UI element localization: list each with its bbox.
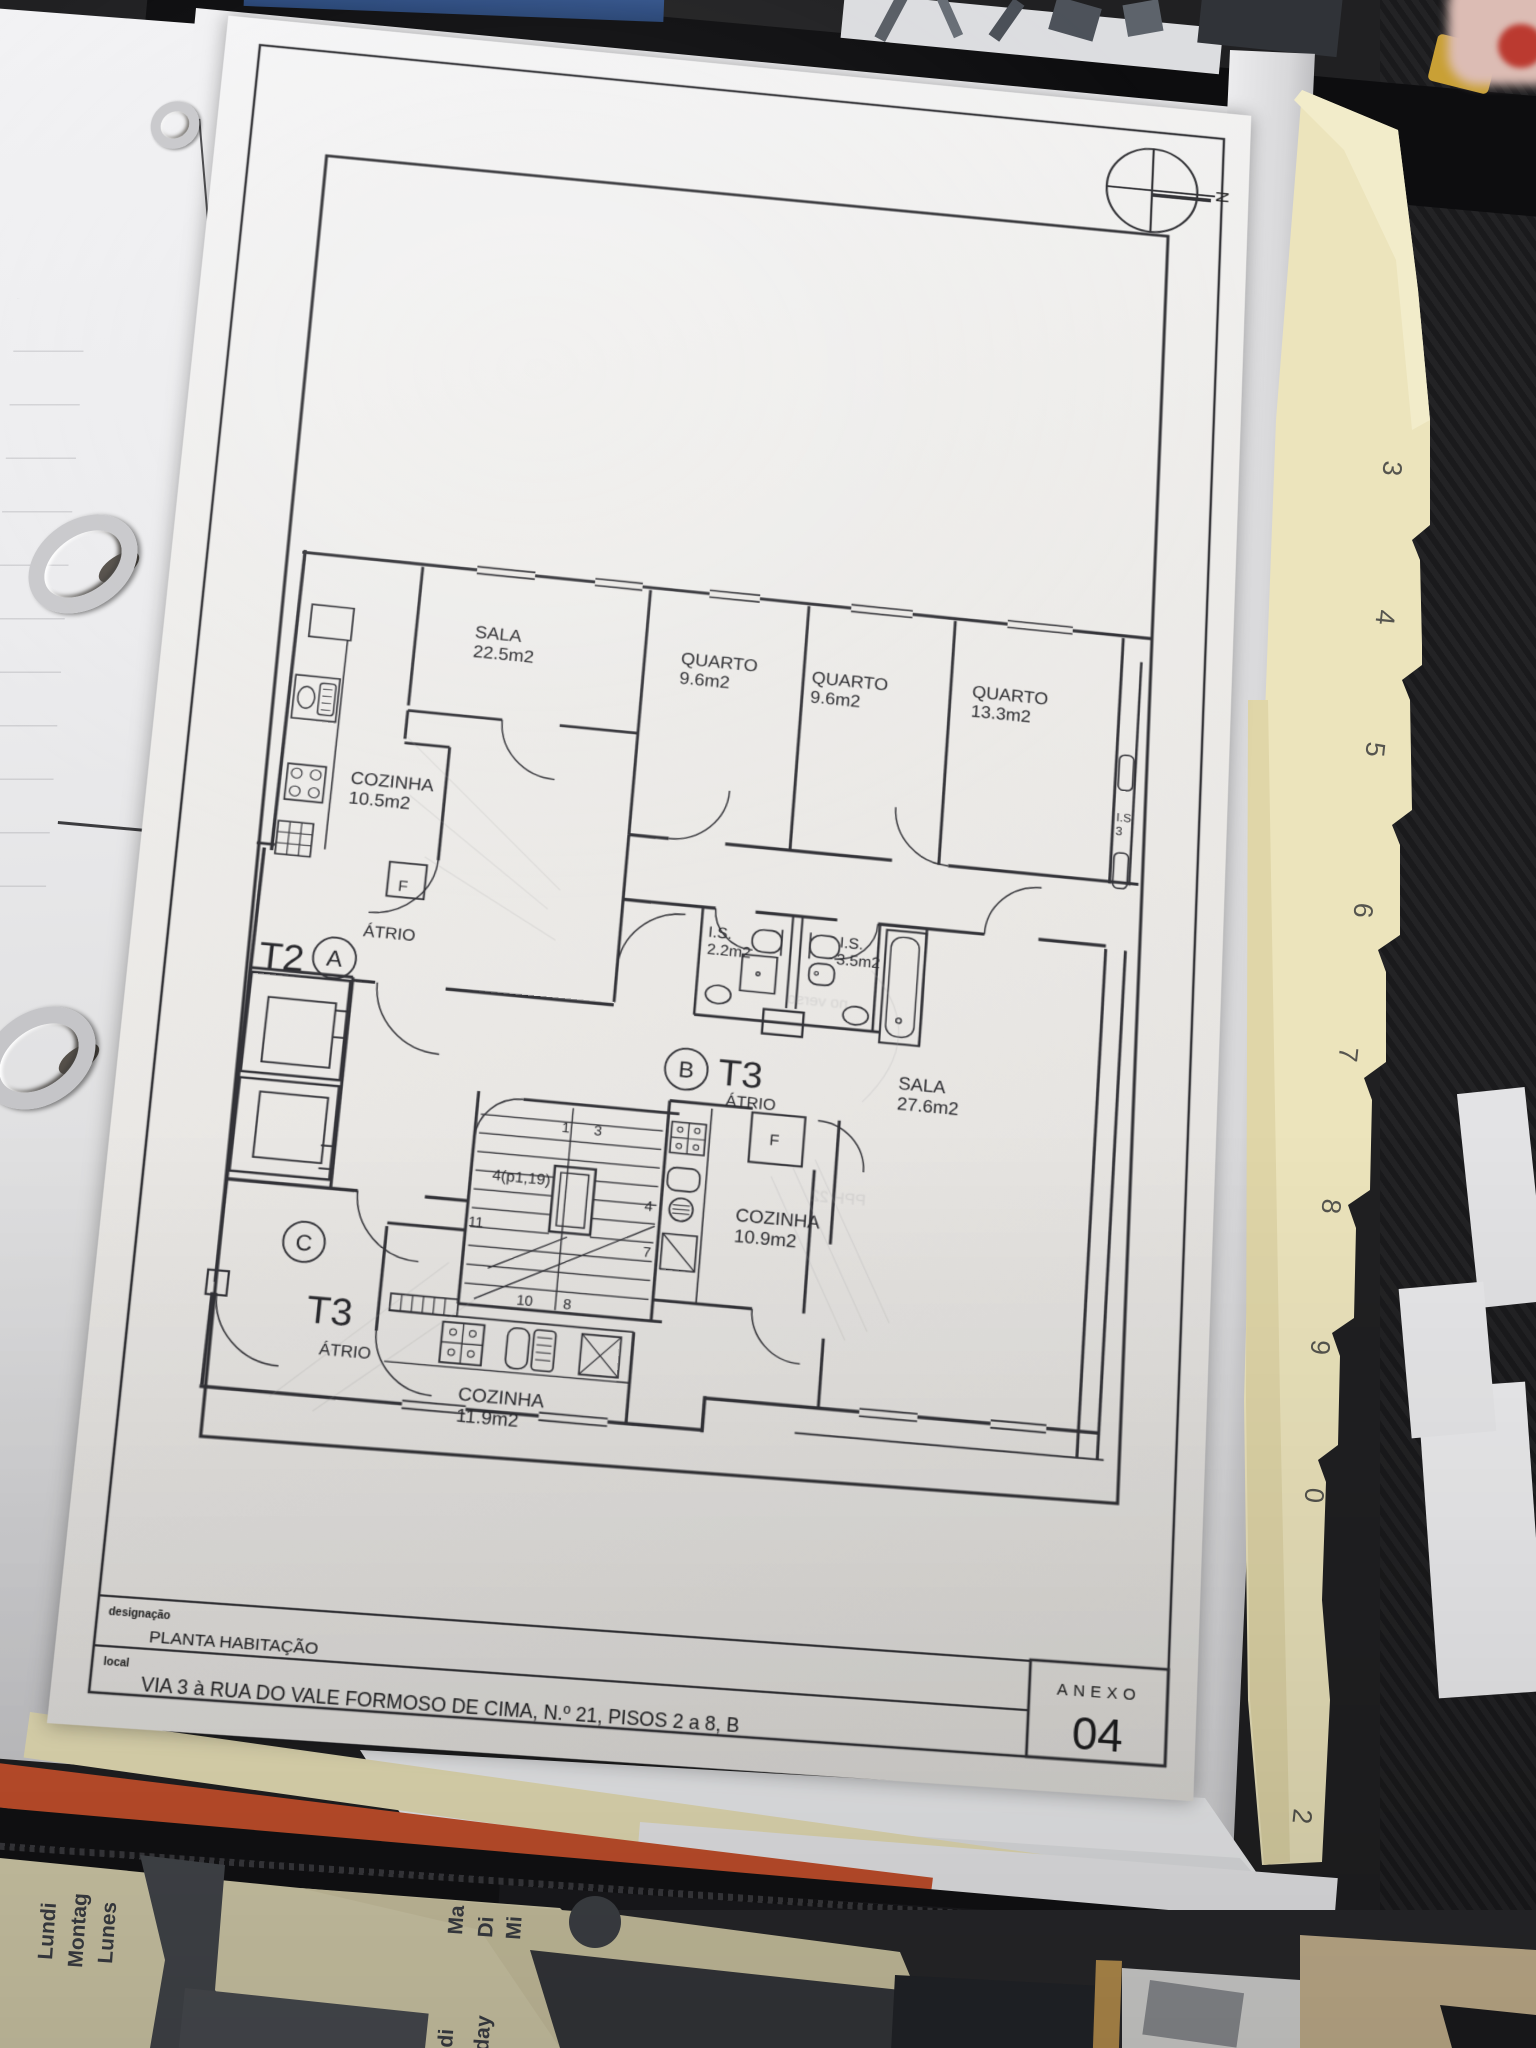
svg-text:B: B	[677, 1058, 695, 1084]
svg-text:11: 11	[468, 1213, 485, 1231]
svg-text:7: 7	[642, 1244, 651, 1261]
svg-text:04: 04	[1071, 1706, 1124, 1762]
svg-text:T3: T3	[716, 1053, 764, 1097]
svg-text:I.S.: I.S.	[839, 935, 864, 954]
svg-text:Di: Di	[474, 1916, 498, 1939]
svg-text:C: C	[294, 1231, 313, 1257]
svg-text:3: 3	[593, 1122, 602, 1139]
svg-text:T2: T2	[257, 935, 306, 979]
svg-text:F: F	[397, 878, 409, 896]
svg-text:6: 6	[1347, 901, 1378, 919]
svg-text:22.5m2: 22.5m2	[472, 642, 535, 667]
svg-text:ÁTRIO: ÁTRIO	[318, 1340, 372, 1363]
svg-text:T3: T3	[304, 1289, 354, 1335]
svg-text:7: 7	[1332, 1045, 1363, 1063]
svg-text:ÁTRIO: ÁTRIO	[362, 923, 416, 946]
svg-text:10: 10	[516, 1291, 534, 1309]
svg-text:Lunes: Lunes	[94, 1901, 121, 1964]
svg-text:ANEXO: ANEXO	[1057, 1681, 1142, 1705]
svg-text:designação: designação	[108, 1606, 171, 1623]
svg-text:10.9m2: 10.9m2	[733, 1226, 797, 1252]
svg-text:0: 0	[1298, 1486, 1329, 1504]
svg-text:9: 9	[1304, 1338, 1335, 1356]
svg-text:2.2m2: 2.2m2	[706, 941, 751, 962]
svg-text:3.5m2: 3.5m2	[836, 952, 881, 973]
svg-text:9.6m2: 9.6m2	[810, 687, 862, 711]
svg-text:I.S.: I.S.	[708, 924, 733, 943]
svg-text:3: 3	[1376, 459, 1407, 477]
svg-text:8: 8	[562, 1296, 572, 1313]
svg-text:8: 8	[1315, 1197, 1346, 1215]
svg-text:27.6m2: 27.6m2	[896, 1094, 959, 1120]
svg-text:4(p1,19): 4(p1,19)	[492, 1166, 552, 1189]
svg-text:11.9m2: 11.9m2	[455, 1405, 519, 1432]
svg-text:5: 5	[1359, 740, 1390, 758]
svg-text:day: day	[470, 2014, 495, 2048]
svg-text:4: 4	[1369, 608, 1400, 626]
svg-text:Ma: Ma	[444, 1904, 469, 1935]
svg-text:I.S: I.S	[1116, 812, 1132, 826]
svg-text:di: di	[434, 2028, 458, 2048]
svg-text:Mi: Mi	[502, 1915, 527, 1940]
svg-text:Lundi: Lundi	[34, 1902, 61, 1961]
svg-text:local: local	[103, 1656, 130, 1671]
svg-text:9.6m2: 9.6m2	[679, 668, 731, 692]
svg-text:3: 3	[1115, 826, 1123, 839]
svg-text:A: A	[325, 946, 344, 972]
svg-text:PPH 22: PPH 22	[810, 1188, 866, 1210]
svg-text:1: 1	[561, 1119, 571, 1136]
svg-text:N: N	[1212, 190, 1233, 204]
svg-text:ÁTRIO: ÁTRIO	[725, 1092, 777, 1115]
svg-text:4: 4	[644, 1198, 653, 1215]
svg-text:no verso: no verso	[787, 990, 849, 1013]
svg-text:F: F	[769, 1132, 780, 1150]
